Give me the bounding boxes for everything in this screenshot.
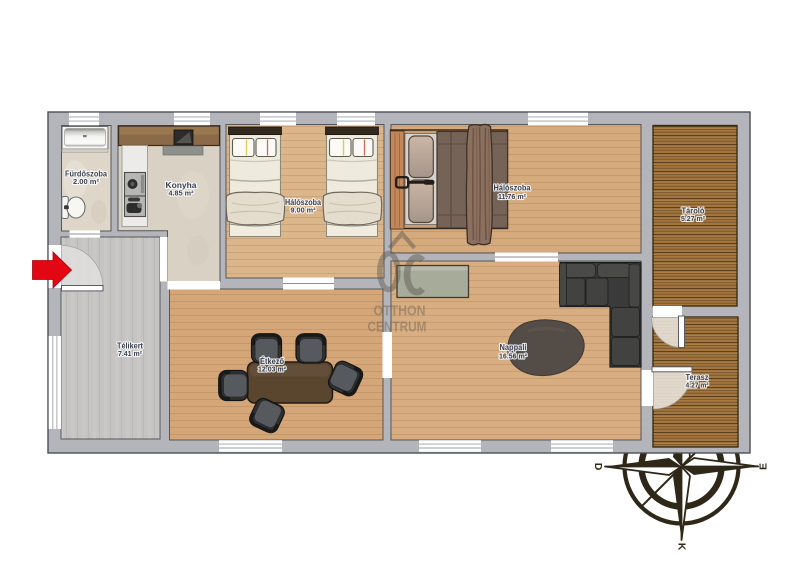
svg-text:9.00 m²: 9.00 m² — [291, 208, 317, 215]
svg-text:7.41 m²: 7.41 m² — [118, 351, 143, 358]
svg-text:4.27 m²: 4.27 m² — [686, 383, 710, 390]
svg-text:Konyha: Konyha — [166, 181, 198, 190]
svg-text:CENTRUM: CENTRUM — [368, 319, 427, 336]
svg-text:Télikert: Télikert — [117, 342, 143, 351]
svg-text:Nappali: Nappali — [500, 343, 527, 352]
svg-text:Tároló: Tároló — [682, 207, 705, 216]
svg-text:É: É — [756, 463, 769, 470]
svg-text:OTTHON: OTTHON — [374, 303, 426, 320]
svg-text:Étkező: Étkező — [260, 357, 284, 366]
svg-text:5.27 m²: 5.27 m² — [681, 216, 706, 223]
svg-text:4.85 m²: 4.85 m² — [169, 191, 195, 198]
svg-text:Hálószoba: Hálószoba — [285, 198, 321, 207]
svg-text:Fürdőszoba: Fürdőszoba — [65, 170, 107, 179]
svg-text:D: D — [592, 463, 604, 471]
svg-text:K: K — [676, 543, 688, 551]
svg-text:Hálószoba: Hálószoba — [494, 184, 532, 193]
svg-text:2.00 m²: 2.00 m² — [73, 179, 100, 186]
svg-text:12.03 m²: 12.03 m² — [258, 367, 287, 374]
svg-text:Terasz: Terasz — [686, 373, 709, 382]
svg-text:11.76 m²: 11.76 m² — [498, 194, 527, 201]
svg-text:16.56 m²: 16.56 m² — [499, 354, 528, 361]
